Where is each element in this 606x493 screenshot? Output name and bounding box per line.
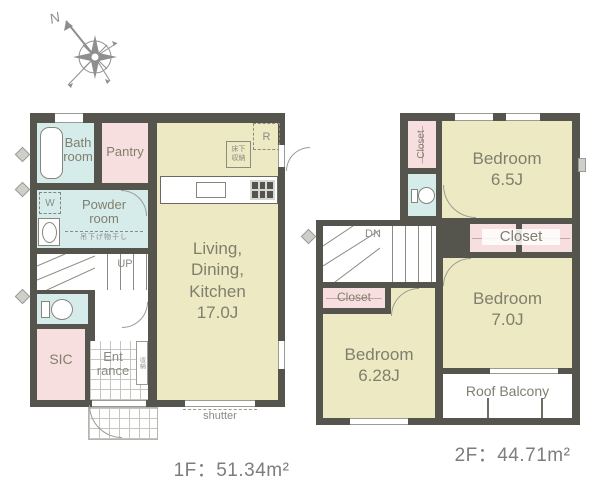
laundry-pole-line	[65, 231, 143, 232]
up-label: UP	[110, 259, 140, 271]
laundry-pole-label: 吊下げ物干し	[62, 234, 146, 242]
vent-icon-1f-c	[15, 289, 31, 305]
toilet-icon-1f	[51, 299, 73, 320]
stairs-winders-1f	[37, 254, 95, 290]
bedroom628-window	[350, 418, 408, 425]
roof-balcony-label: Roof Balcony	[443, 384, 572, 399]
fridge-space: R	[253, 123, 280, 150]
entrance-label: Ent rance	[88, 350, 138, 378]
floor-storage-box: 床下 収納	[226, 141, 251, 168]
bedroom65-window-b	[506, 113, 540, 121]
sic-label: SIC	[37, 352, 85, 367]
bath-window	[55, 113, 83, 123]
closet-row-label: Closet	[482, 229, 560, 245]
entrance-storage: 収納	[136, 341, 148, 385]
washer-label: W	[45, 198, 54, 209]
bath-label: Bath room	[58, 136, 98, 164]
compass-north-label: N	[47, 8, 62, 27]
floor1-area-label: 1F：51.34m²	[144, 455, 319, 482]
bedroom-628-label: Bedroom 6.28J	[323, 344, 435, 387]
toilet-tank-1f	[41, 301, 50, 318]
floor-storage-label: 床下 収納	[232, 146, 246, 162]
bedroom-70-label: Bedroom 7.0J	[443, 288, 572, 331]
side-door-arc	[286, 147, 310, 171]
washer-space: W	[39, 192, 61, 214]
balcony-window	[490, 368, 558, 374]
entrance-storage-label: 収納	[138, 357, 147, 369]
sink-icon	[196, 182, 226, 198]
stove-icon	[250, 180, 275, 200]
closet-tall: Closet	[408, 121, 436, 168]
pantry-label: Pantry	[100, 145, 150, 159]
floor-plan-canvas: N UP W 吊下げ物干し 床下 収納 R Bath room Pantry P…	[0, 0, 606, 493]
ldk-side-window	[278, 341, 285, 369]
vent-icon-2f-a	[301, 229, 317, 245]
floor2-area-label: 2F：44.71m²	[425, 440, 600, 467]
vent-icon-2f-b	[578, 158, 586, 172]
fridge-label: R	[263, 131, 271, 143]
ldk-label: Living, Dining, Kitchen 17.0J	[157, 238, 278, 323]
vent-icon-1f-a	[15, 147, 31, 163]
vent-icon-1f-b	[15, 182, 31, 198]
down-label: DN	[358, 229, 388, 241]
balcony-railing-tick-a	[487, 398, 489, 418]
closet-tall-label: Closet	[417, 130, 428, 158]
toilet-icon-2f	[418, 187, 435, 204]
ldk-shutter-window	[185, 400, 255, 407]
closet-small-label: Closet	[323, 291, 385, 304]
compass-icon: N	[40, 5, 160, 100]
stairs-treads-2f	[380, 226, 436, 282]
closet-small-wall-bottom	[323, 308, 391, 314]
kitchen-side-door-opening	[278, 145, 285, 167]
toilet-tank-2f	[411, 189, 418, 203]
bedroom65-window-a	[455, 113, 493, 121]
washbasin-icon	[38, 218, 60, 246]
balcony-railing-tick-b	[541, 398, 543, 418]
shutter-label: shutter	[180, 411, 260, 423]
